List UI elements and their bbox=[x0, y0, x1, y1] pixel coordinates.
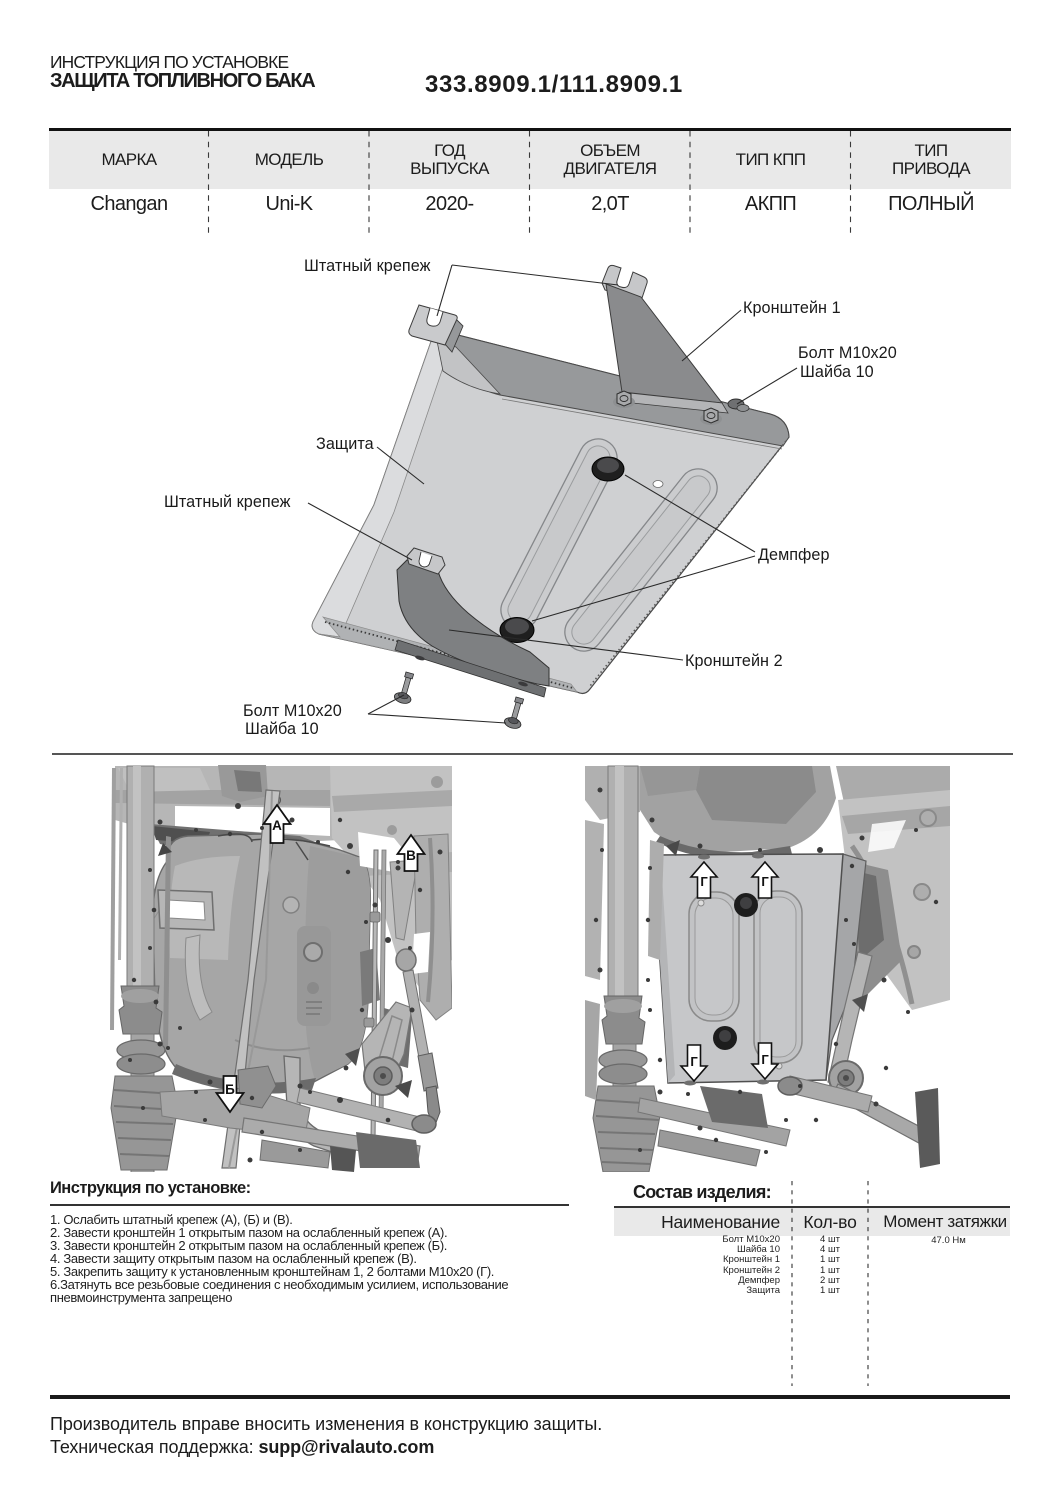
svg-text:Г: Г bbox=[690, 1054, 698, 1069]
svg-text:Штатный крепеж: Штатный крепеж bbox=[304, 257, 431, 275]
svg-text:Болт М10х20: Болт М10х20 bbox=[243, 702, 342, 720]
svg-text:Г: Г bbox=[700, 874, 708, 889]
svg-text:Г: Г bbox=[761, 1052, 769, 1067]
svg-text:В: В bbox=[406, 848, 416, 863]
svg-text:Б: Б bbox=[225, 1082, 235, 1097]
svg-text:Штатный крепеж: Штатный крепеж bbox=[164, 493, 291, 511]
svg-text:А: А bbox=[272, 818, 282, 833]
svg-text:Шайба 10: Шайба 10 bbox=[800, 363, 874, 381]
svg-text:Демпфер: Демпфер bbox=[758, 546, 830, 564]
svg-text:Шайба 10: Шайба 10 bbox=[245, 720, 319, 738]
svg-text:Кронштейн 1: Кронштейн 1 bbox=[743, 299, 841, 317]
svg-text:Кронштейн 2: Кронштейн 2 bbox=[685, 652, 783, 670]
svg-text:Болт М10х20: Болт М10х20 bbox=[798, 344, 897, 362]
svg-text:Защита: Защита bbox=[316, 435, 374, 453]
svg-text:Г: Г bbox=[761, 874, 769, 889]
